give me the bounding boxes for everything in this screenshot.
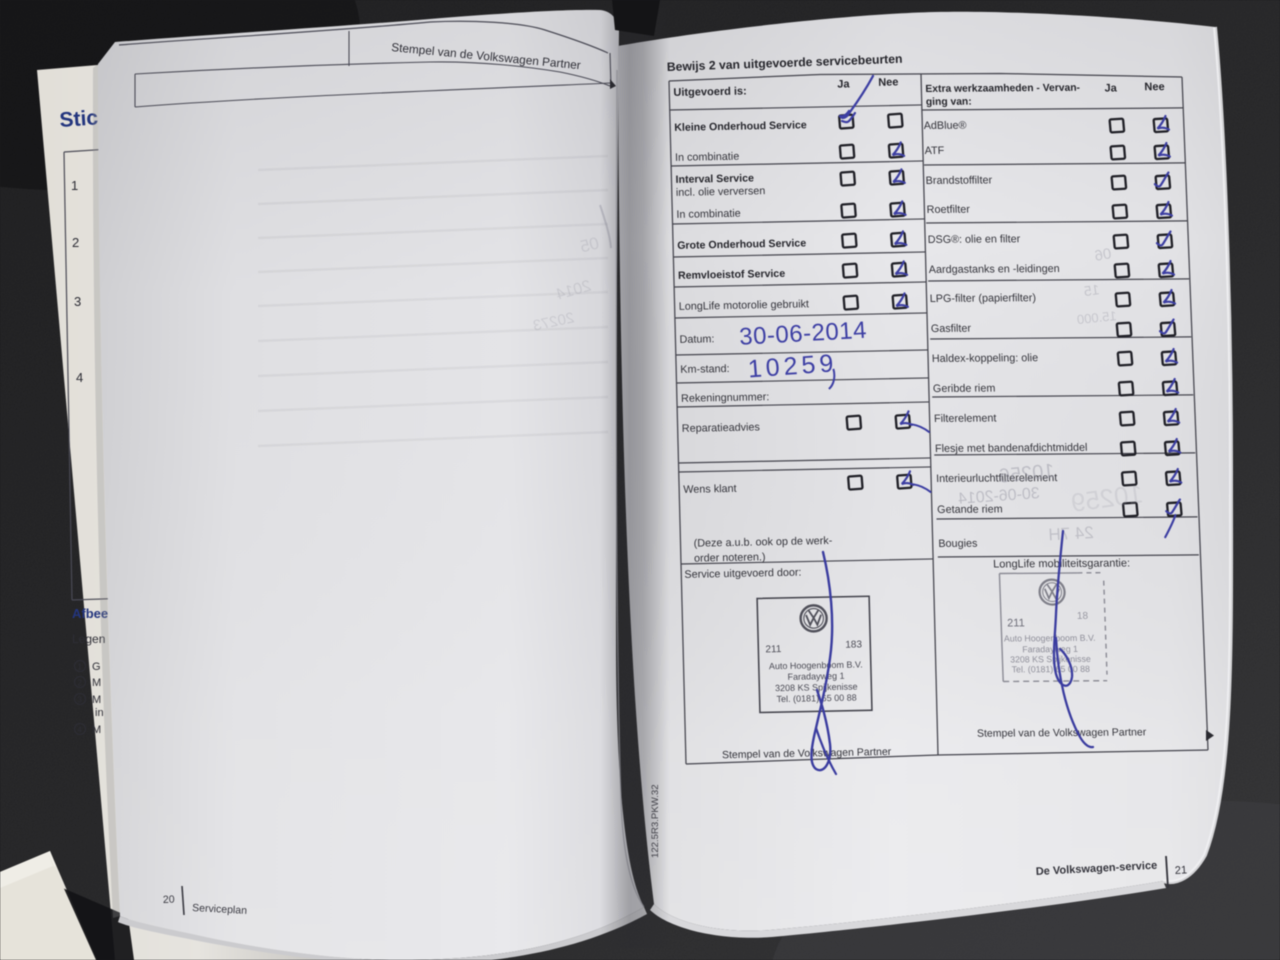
svg-text:Tel. (0181) 65 00 88: Tel. (0181) 65 00 88 bbox=[776, 693, 856, 705]
svg-text:Filterelement: Filterelement bbox=[934, 412, 997, 424]
svg-text:incl. olie verversen: incl. olie verversen bbox=[676, 185, 766, 199]
svg-text:Service uitgevoerd door:: Service uitgevoerd door: bbox=[684, 567, 801, 581]
svg-text:15: 15 bbox=[1083, 281, 1101, 299]
svg-text:DSG®: olie en filter: DSG®: olie en filter bbox=[928, 233, 1021, 246]
svg-text:Wens klant: Wens klant bbox=[683, 483, 737, 496]
svg-text:Ja: Ja bbox=[837, 78, 850, 90]
svg-text:Remvloeistof Service: Remvloeistof Service bbox=[678, 268, 786, 282]
svg-text:Stempel van de Volkswagen Part: Stempel van de Volkswagen Partner bbox=[977, 726, 1147, 739]
svg-text:Auto Hoogenboom B.V.: Auto Hoogenboom B.V. bbox=[1004, 633, 1096, 644]
svg-text:3208 KS Spijkenisse: 3208 KS Spijkenisse bbox=[1010, 654, 1091, 665]
svg-text:Tel. (0181) 65 00 88: Tel. (0181) 65 00 88 bbox=[1012, 664, 1091, 675]
svg-text:Legen: Legen bbox=[72, 632, 105, 646]
svg-text:3: 3 bbox=[78, 696, 83, 705]
svg-text:ging van:: ging van: bbox=[926, 97, 972, 108]
svg-text:Faradayweg 1: Faradayweg 1 bbox=[787, 671, 844, 682]
svg-text:Haldex-koppeling: olie: Haldex-koppeling: olie bbox=[932, 352, 1039, 365]
svg-text:24 7H: 24 7H bbox=[1048, 523, 1094, 544]
svg-text:211: 211 bbox=[1007, 617, 1025, 629]
svg-text:Roetfilter: Roetfilter bbox=[926, 204, 970, 216]
svg-text:Uitgevoerd is:: Uitgevoerd is: bbox=[673, 85, 747, 98]
svg-text:Interval Service: Interval Service bbox=[675, 172, 754, 186]
svg-text:Auto Hoogenboom B.V.: Auto Hoogenboom B.V. bbox=[769, 659, 863, 671]
svg-text:Faradayweg 1: Faradayweg 1 bbox=[1022, 644, 1078, 654]
svg-text:Gasfilter: Gasfilter bbox=[931, 323, 972, 335]
svg-text:1: 1 bbox=[71, 178, 78, 193]
svg-text:21: 21 bbox=[1175, 864, 1188, 877]
svg-text:Nee: Nee bbox=[878, 76, 898, 88]
svg-text:M: M bbox=[92, 694, 101, 706]
svg-text:06: 06 bbox=[1093, 245, 1112, 265]
svg-text:Datum:: Datum: bbox=[679, 333, 714, 346]
svg-text:Rekeningnummer:: Rekeningnummer: bbox=[681, 391, 769, 405]
svg-text:20: 20 bbox=[163, 894, 175, 906]
svg-text:4: 4 bbox=[76, 370, 83, 385]
svg-text:In combinatie: In combinatie bbox=[675, 151, 740, 164]
svg-text:Nee: Nee bbox=[1144, 81, 1165, 93]
svg-text:Bougies: Bougies bbox=[938, 538, 978, 550]
svg-text:183: 183 bbox=[845, 639, 862, 650]
svg-text:2: 2 bbox=[72, 235, 79, 250]
svg-text:18: 18 bbox=[1077, 611, 1089, 622]
svg-text:ATF: ATF bbox=[924, 145, 944, 157]
svg-text:4: 4 bbox=[78, 726, 83, 735]
svg-text:Brandstoffilter: Brandstoffilter bbox=[925, 174, 992, 187]
svg-text:Km-stand:: Km-stand: bbox=[680, 363, 729, 376]
svg-text:Flesje met bandenafdichtmiddel: Flesje met bandenafdichtmiddel bbox=[935, 442, 1088, 455]
svg-text:Reparatieadvies: Reparatieadvies bbox=[682, 421, 761, 435]
svg-text:In combinatie: In combinatie bbox=[676, 208, 741, 221]
svg-text:3: 3 bbox=[74, 294, 81, 309]
svg-text:1: 1 bbox=[78, 663, 83, 672]
svg-text:in: in bbox=[95, 707, 104, 719]
svg-text:Aardgastanks en -leidingen: Aardgastanks en -leidingen bbox=[929, 263, 1060, 276]
svg-text:Extra werkzaamheden - Vervan-: Extra werkzaamheden - Vervan- bbox=[925, 83, 1080, 95]
svg-text:2: 2 bbox=[78, 679, 83, 688]
svg-text:G: G bbox=[92, 661, 101, 673]
svg-text:LongLife mobiliteitsgarantie:: LongLife mobiliteitsgarantie: bbox=[993, 557, 1130, 570]
svg-text:M: M bbox=[92, 724, 101, 736]
svg-text:AdBlue®: AdBlue® bbox=[924, 120, 967, 132]
svg-text:Ja: Ja bbox=[1104, 82, 1118, 94]
svg-text:order noteren.): order noteren.) bbox=[694, 551, 766, 564]
svg-text:Geribde riem: Geribde riem bbox=[933, 382, 996, 394]
svg-text:M: M bbox=[92, 677, 101, 689]
svg-text:LPG-filter (papierfilter): LPG-filter (papierfilter) bbox=[930, 292, 1037, 305]
svg-text:211: 211 bbox=[765, 644, 782, 655]
